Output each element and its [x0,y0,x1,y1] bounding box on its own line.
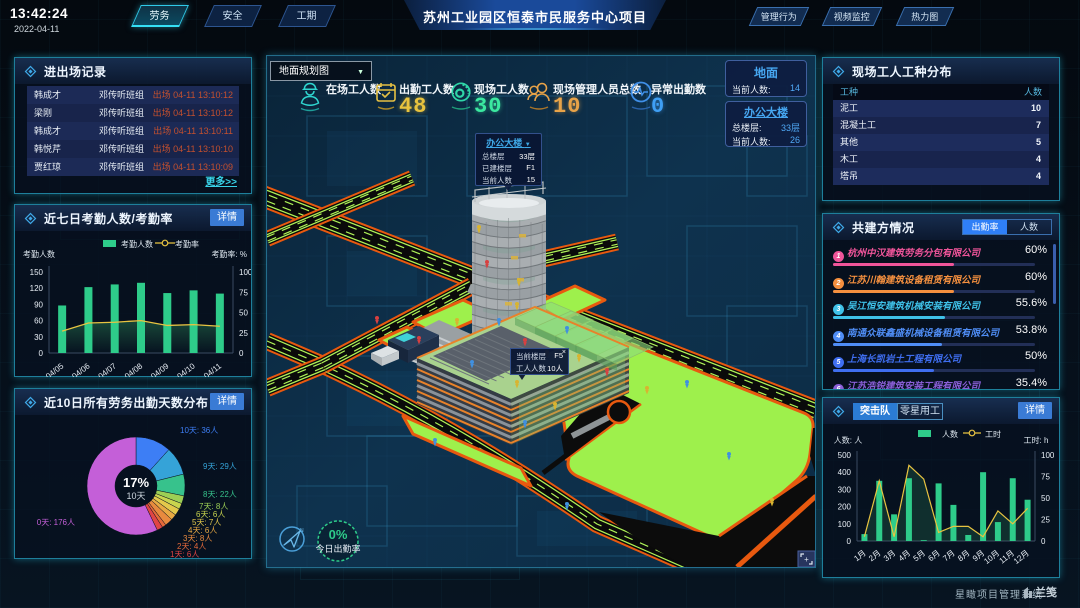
svg-text:25: 25 [239,329,248,338]
svg-text:9天: 29人: 9天: 29人 [203,462,237,471]
svg-text:04/10: 04/10 [175,361,197,377]
svg-text:考勤人数: 考勤人数 [23,249,55,259]
svg-text:考勤人数: 考勤人数 [121,239,153,249]
svg-text:4月: 4月 [897,548,912,563]
svg-text:8月: 8月 [956,548,971,563]
svg-text:50: 50 [1041,494,1050,503]
svg-text:工时: 工时 [985,429,1001,439]
svg-text:工时: h: 工时: h [1024,435,1049,445]
svg-text:7月: 7月 [941,548,956,563]
svg-text:100: 100 [838,520,852,529]
svg-text:0%: 0% [329,527,348,542]
svg-text:2月: 2月 [867,548,882,563]
svg-text:3月: 3月 [882,548,897,563]
svg-text:1月: 1月 [852,548,867,563]
svg-text:04/07: 04/07 [97,361,119,377]
svg-text:120: 120 [30,284,44,293]
svg-text:60: 60 [34,317,43,326]
svg-text:1天: 6人: 1天: 6人 [170,550,199,559]
svg-text:考勤率: %: 考勤率: % [211,249,247,259]
svg-text:100: 100 [1041,451,1055,460]
svg-text:6月: 6月 [926,548,941,563]
svg-text:04/11: 04/11 [202,361,223,377]
svg-text:0: 0 [847,537,852,546]
svg-text:10天: 36人: 10天: 36人 [180,426,218,435]
svg-text:04/08: 04/08 [123,361,145,377]
svg-text:04/09: 04/09 [149,361,171,377]
svg-text:+: + [804,555,809,564]
svg-text:考勤率: 考勤率 [175,239,199,249]
svg-text:30: 30 [34,333,43,342]
svg-text:5月: 5月 [912,548,927,563]
svg-text:12月: 12月 [1012,548,1031,566]
svg-text:10天: 10天 [126,491,145,501]
svg-text:90: 90 [34,300,43,309]
svg-text:8天: 22人: 8天: 22人 [203,490,237,499]
svg-text:N: N [300,528,304,534]
svg-text:500: 500 [838,451,852,460]
svg-text:17%: 17% [123,475,149,490]
svg-text:300: 300 [838,485,852,494]
svg-text:0: 0 [39,349,44,358]
svg-text:100: 100 [239,268,251,277]
svg-text:人数: 人数 [942,429,958,439]
svg-text:400: 400 [838,468,852,477]
svg-text:今日出勤率: 今日出勤率 [315,543,360,554]
svg-text:0天: 176人: 0天: 176人 [37,518,75,527]
svg-text:75: 75 [1041,473,1050,482]
svg-text:0: 0 [1041,537,1046,546]
svg-text:50: 50 [239,309,248,318]
svg-text:人数: 人: 人数: 人 [834,435,862,445]
svg-text:150: 150 [30,268,44,277]
svg-text:0: 0 [239,349,244,358]
svg-text:75: 75 [239,288,248,297]
svg-text:25: 25 [1041,516,1050,525]
svg-text:04/06: 04/06 [70,361,92,377]
svg-text:04/05: 04/05 [44,361,66,377]
svg-text:200: 200 [838,503,852,512]
